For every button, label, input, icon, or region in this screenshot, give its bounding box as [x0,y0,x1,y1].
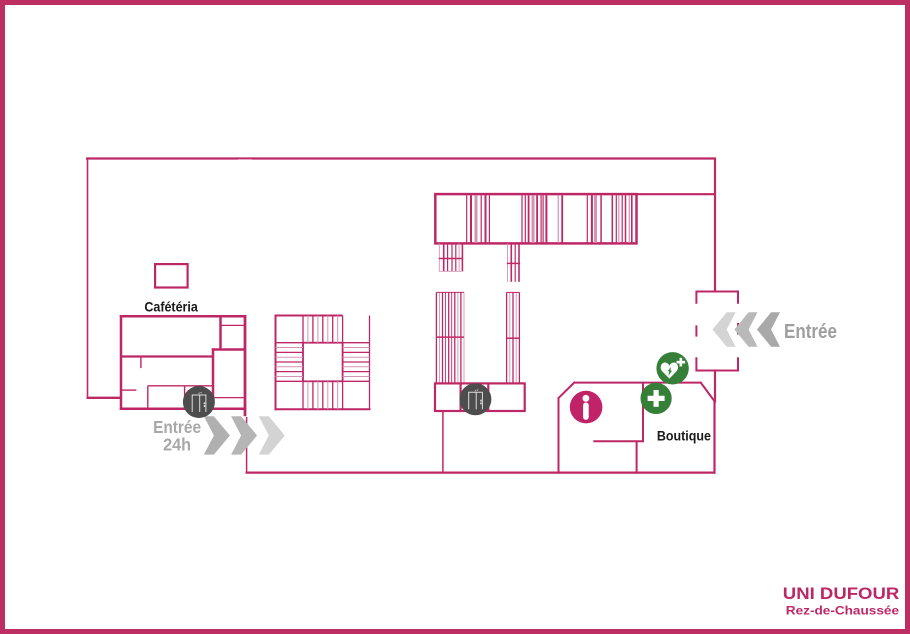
svg-text:Boutique: Boutique [657,428,711,444]
svg-text:Entrée: Entrée [784,320,837,343]
svg-text:Rez-de-Chaussée: Rez-de-Chaussée [786,604,900,618]
svg-text:24h: 24h [163,434,191,454]
svg-text:UNI DUFOUR: UNI DUFOUR [783,585,900,603]
svg-text:Cafétéria: Cafétéria [144,299,198,315]
